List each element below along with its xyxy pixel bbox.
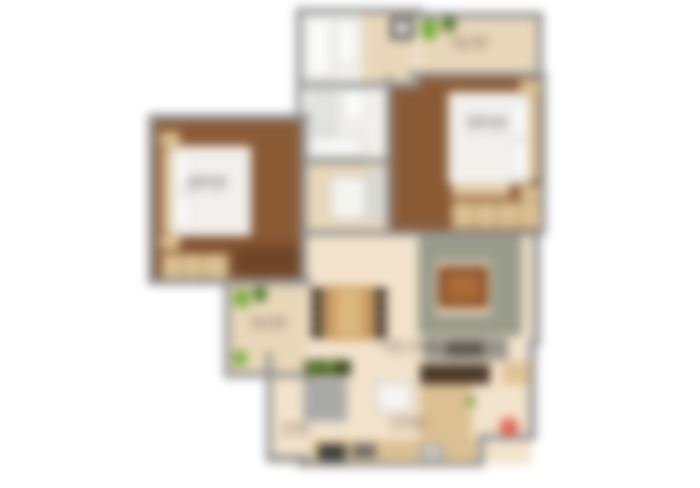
wardrobe-divider	[474, 202, 476, 228]
room-label-dims: 5'0" X 8'0"	[244, 326, 296, 334]
entrance-door	[502, 362, 530, 384]
room-label-kitchen: KITCHEN 8'0" X 10'0"	[384, 418, 434, 434]
room-label-text: BEDROOM	[458, 118, 516, 126]
room-label-dims: 11'0" X 17'0"	[378, 350, 438, 358]
wall	[408, 72, 543, 78]
kitchen-counter-right	[420, 384, 472, 444]
wall	[386, 76, 392, 234]
floor-plan: BEDROOM 10'6" X 12'0" BEDROOM 11'0" X 12…	[0, 0, 700, 488]
wall	[148, 278, 312, 285]
nightstand	[520, 80, 540, 95]
stove	[318, 444, 346, 461]
wardrobe-divider	[518, 202, 520, 228]
wall	[148, 114, 155, 285]
dresser	[236, 248, 300, 276]
room-label-text: KITCHEN	[384, 418, 434, 426]
wardrobe-divider	[182, 254, 184, 278]
dining-chair	[375, 327, 387, 338]
wall	[224, 280, 230, 378]
plant-icon	[324, 361, 334, 372]
nightstand	[160, 132, 180, 148]
dining-chair	[375, 288, 387, 299]
room-label-text: FOYER	[272, 424, 320, 432]
kitchen-cabinet	[420, 364, 490, 384]
nightstand	[520, 186, 540, 201]
floor-plan-image: BEDROOM 10'6" X 12'0" BEDROOM 11'0" X 12…	[0, 0, 700, 488]
plant-icon	[253, 286, 267, 302]
room-label-text: BALCONY	[436, 38, 506, 46]
fridge	[376, 382, 412, 412]
dining-chair	[311, 301, 323, 312]
wall	[296, 8, 302, 120]
shoe-rack-slat	[303, 412, 347, 417]
plant-icon	[466, 396, 476, 406]
sink-basin	[425, 447, 439, 458]
logo-mark-center	[505, 423, 513, 431]
wall	[266, 455, 310, 462]
dining-table-runner	[336, 290, 362, 336]
washing-machine-door	[395, 21, 409, 35]
wall	[300, 158, 390, 164]
plant-icon	[442, 16, 456, 32]
wall	[296, 82, 422, 88]
plant-icon	[420, 18, 438, 40]
dining-chair	[311, 288, 323, 299]
bed-pillow	[175, 194, 190, 228]
room-label-dims: 10'6" X 12'0"	[178, 186, 236, 194]
room-label-balcony-top: BALCONY 9'0" X 4'0"	[436, 38, 506, 54]
bed-pillow	[513, 142, 528, 176]
shoe-rack-slat	[303, 392, 347, 397]
coffee-table-top	[446, 274, 480, 300]
toilet-fixture	[344, 90, 365, 119]
wardrobe-divider	[202, 254, 204, 278]
room-label-foyer: FOYER 4'0" X 6'0"	[272, 424, 320, 440]
wall	[148, 114, 310, 121]
shower	[309, 92, 337, 134]
wall	[414, 12, 543, 18]
wall	[296, 8, 422, 14]
wall	[537, 12, 543, 78]
toilet-fixture	[336, 22, 358, 64]
dining-chair	[311, 327, 323, 338]
wall	[539, 72, 546, 234]
wardrobe	[162, 254, 228, 278]
tv	[446, 341, 484, 357]
dining-chair	[375, 301, 387, 312]
wall	[533, 228, 540, 346]
room-label-dims: 9'0" X 4'0"	[436, 46, 506, 54]
room-label-living: LIVING / DINING 11'0" X 17'0"	[378, 342, 438, 358]
nightstand	[160, 234, 180, 250]
room-label-balcony-left: BALCONY 5'0" X 8'0"	[244, 318, 296, 334]
room-label-dims: 4'0" X 6'0"	[272, 432, 320, 440]
shoe-rack-slat	[303, 402, 347, 407]
wall	[529, 340, 536, 440]
plant-icon	[308, 361, 320, 373]
wardrobe-divider	[496, 202, 498, 228]
shower	[366, 170, 386, 220]
dining-chair	[311, 314, 323, 325]
shower	[306, 18, 332, 76]
kitchen-appliance	[352, 444, 376, 458]
toilet-fixture	[330, 176, 366, 220]
room-label-bedroom-right: BEDROOM 11'0" X 12'6"	[458, 118, 516, 134]
plant-icon	[233, 350, 247, 366]
room-label-text: LIVING / DINING	[378, 342, 438, 350]
wall	[266, 352, 272, 462]
bed-bench	[452, 184, 510, 197]
washbasin-counter	[310, 135, 364, 158]
plant-icon	[234, 288, 250, 308]
room-label-text: BALCONY	[244, 318, 296, 326]
room-label-text: BEDROOM	[178, 178, 236, 186]
room-label-dims: 8'0" X 10'0"	[384, 426, 434, 434]
room-label-dims: 11'0" X 12'6"	[458, 126, 516, 134]
shoe-rack-slat	[303, 382, 347, 387]
wall	[300, 114, 307, 285]
room-label-bedroom-left: BEDROOM 10'6" X 12'0"	[178, 178, 236, 194]
dining-chair	[375, 314, 387, 325]
